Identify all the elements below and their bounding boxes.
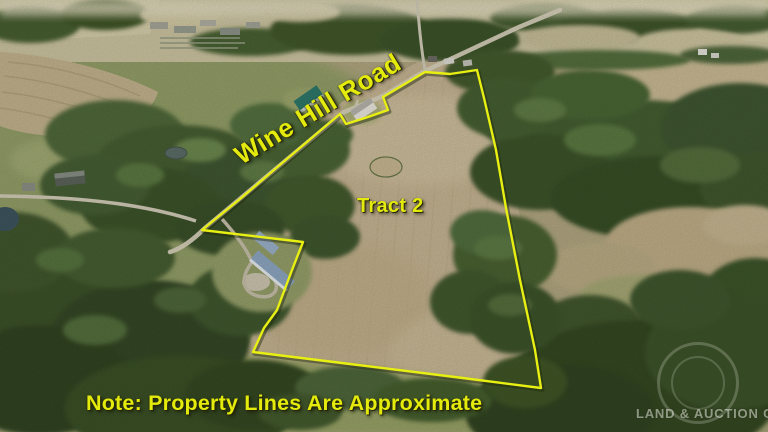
watermark-company-name: LAND & AUCTION CO [636, 406, 768, 421]
watermark: LAND & AUCTION CO [636, 342, 768, 432]
aerial-photo: Wine Hill Road Tract 2 Note: Property Li… [0, 0, 768, 432]
tract-label: Tract 2 [357, 195, 424, 218]
boundary-shadow [204, 72, 543, 390]
note-label: Note: Property Lines Are Approximate [86, 391, 482, 416]
